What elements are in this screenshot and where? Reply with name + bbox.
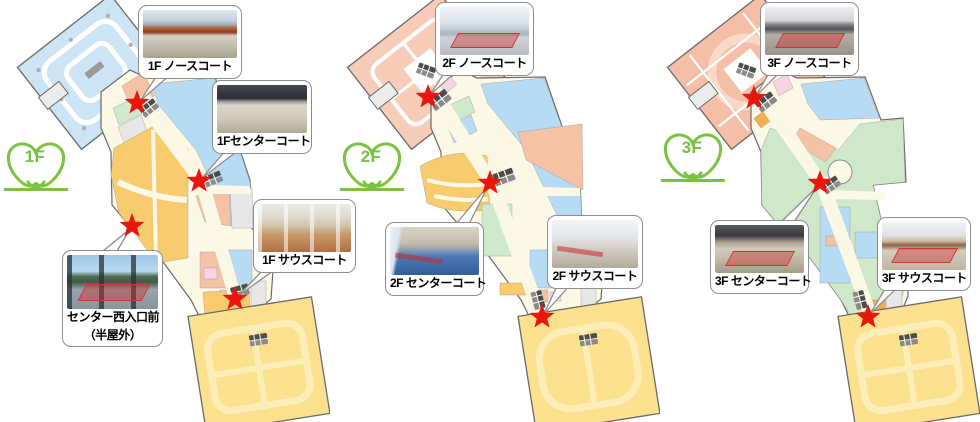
mall-floor-guide: 1F 1F ノースコート 1Fセンターコート 1F サウスコート センター西入口…	[0, 0, 980, 422]
callout-label: 2F センターコート	[390, 275, 479, 294]
callout-label: 1F サウスコート	[258, 252, 351, 271]
callout-3f-south-court: 3F サウスコート	[877, 217, 971, 291]
callout-1f-north-court: 1F ノースコート	[138, 5, 242, 79]
center-court-photo	[390, 227, 479, 275]
callout-3f-north-court: 3F ノースコート	[760, 2, 859, 76]
callout-2f-south-court: 2F サウスコート	[547, 215, 643, 289]
north-court-photo	[440, 7, 529, 55]
south-court-photo	[258, 204, 351, 252]
callout-1f-south-court: 1F サウスコート	[253, 199, 356, 273]
floor-logo-1f: 1F	[4, 138, 66, 194]
anchor-store	[188, 297, 330, 422]
callout-label: （半屋外）	[67, 328, 158, 346]
floor-logo-label: 3F	[661, 138, 723, 158]
south-court-photo	[882, 222, 966, 270]
callout-2f-center-court: 2F センターコート	[385, 222, 484, 296]
south-court-photo	[552, 220, 638, 268]
callout-1f-center-court: 1Fセンターコート	[212, 80, 312, 154]
callout-label: 1F ノースコート	[143, 58, 237, 77]
callout-west-entrance: センター西入口前 （半屋外）	[62, 250, 163, 347]
floor-section-2f: 2F 2F ノースコート 2F センターコート 2F サウスコート	[330, 0, 660, 422]
callout-label: 3F ノースコート	[765, 55, 854, 74]
floor-logo-2f: 2F	[340, 138, 402, 194]
floor-section-1f: 1F 1F ノースコート 1Fセンターコート 1F サウスコート センター西入口…	[0, 0, 330, 422]
floor-logo-label: 2F	[340, 147, 402, 167]
callout-label: 2F サウスコート	[552, 268, 638, 287]
callout-label: 2F ノースコート	[440, 55, 529, 74]
center-court-photo	[715, 225, 804, 273]
floor-logo-label: 1F	[4, 147, 66, 167]
callout-2f-north-court: 2F ノースコート	[435, 2, 534, 76]
callout-label: センター西入口前	[67, 309, 158, 328]
north-court-photo	[765, 7, 854, 55]
callout-3f-center-court: 3F センターコート	[710, 220, 809, 294]
north-court-photo	[143, 10, 237, 58]
callout-label: 3F サウスコート	[882, 270, 966, 289]
center-court-photo	[217, 85, 307, 133]
floor-logo-3f: 3F	[661, 129, 723, 185]
callout-label: 1Fセンターコート	[217, 133, 307, 152]
west-entrance-photo	[67, 255, 158, 309]
floor-section-3f: 3F 3F ノースコート 3F センターコート 3F サウスコート	[650, 0, 980, 422]
callout-label: 3F センターコート	[715, 273, 804, 292]
